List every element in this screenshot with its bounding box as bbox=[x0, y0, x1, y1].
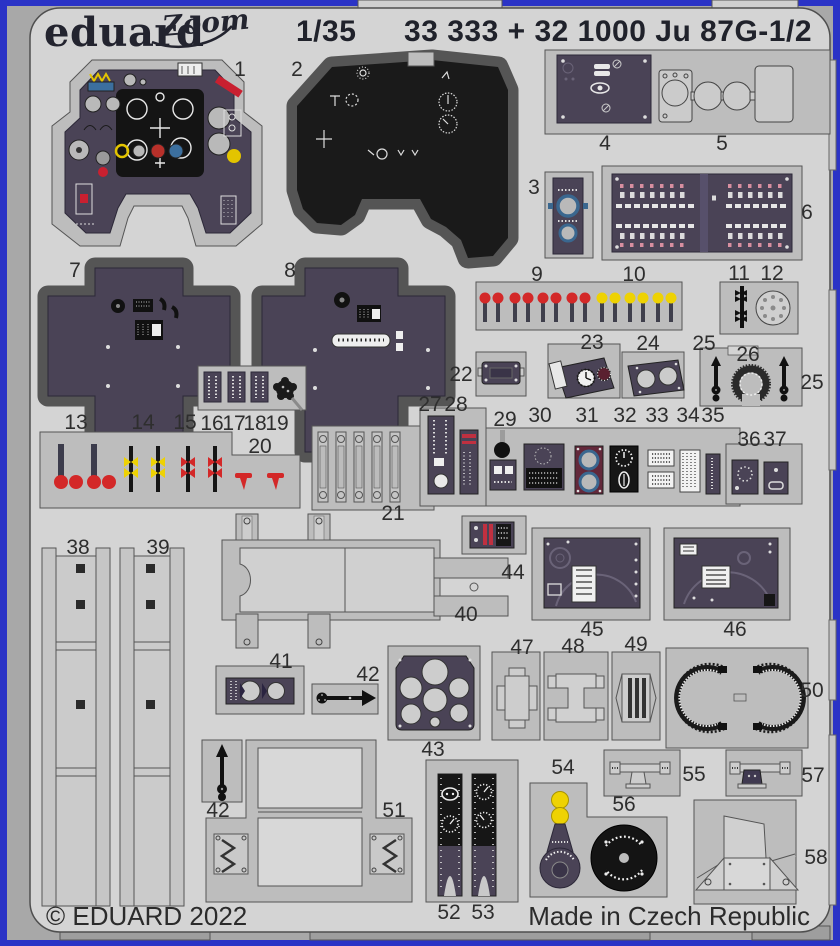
part-number-21: 21 bbox=[381, 502, 404, 525]
part-30 bbox=[524, 444, 564, 490]
part-number-25: 25 bbox=[692, 332, 715, 355]
part-56-disc bbox=[591, 825, 657, 891]
part-44-printed-plate bbox=[462, 516, 526, 554]
part-number-24: 24 bbox=[636, 332, 660, 355]
part-number-47: 47 bbox=[510, 636, 533, 659]
part-number-32: 32 bbox=[613, 404, 636, 427]
part-4-plate bbox=[557, 55, 651, 123]
part-number-2: 2 bbox=[291, 58, 303, 81]
part-number-54: 54 bbox=[551, 756, 575, 779]
part-number-25: 25 bbox=[800, 371, 823, 394]
part-45-console-panel bbox=[532, 528, 650, 620]
part-number-28: 28 bbox=[444, 393, 467, 416]
part-50-serrated-rings bbox=[666, 648, 808, 748]
part-number-29: 29 bbox=[493, 408, 516, 431]
part-number-55: 55 bbox=[682, 763, 705, 786]
part-48-ibeam bbox=[544, 652, 608, 740]
part-number-53: 53 bbox=[471, 901, 494, 924]
part-number-38: 38 bbox=[66, 536, 89, 559]
part-55-bracket bbox=[604, 750, 680, 796]
part-43-gauge-panel bbox=[388, 646, 480, 740]
part-number-44: 44 bbox=[501, 561, 525, 584]
part-11-12 bbox=[720, 282, 798, 334]
part-number-10: 10 bbox=[622, 263, 645, 286]
part-number-57: 57 bbox=[801, 764, 824, 787]
part-number-40: 40 bbox=[454, 603, 477, 626]
part-15-19-plates bbox=[198, 366, 306, 410]
part-number-9: 9 bbox=[531, 263, 543, 286]
part-22-bracket bbox=[476, 352, 526, 396]
part-number-50: 50 bbox=[800, 679, 823, 702]
part-number-12: 12 bbox=[760, 262, 783, 285]
part-34 bbox=[680, 450, 700, 492]
edge-rail bbox=[829, 620, 836, 700]
part-57-bracket bbox=[726, 750, 802, 796]
part-52-53-straps bbox=[426, 760, 518, 902]
part-number-15: 15 bbox=[173, 411, 196, 434]
scale-text: 1/35 bbox=[296, 15, 356, 48]
part-39-frame bbox=[120, 548, 184, 906]
part-35 bbox=[706, 454, 720, 494]
part-31 bbox=[575, 446, 603, 494]
pe-instruction-sheet: eduard Zoom 1/35 33 333 + 32 1000 Ju 87G… bbox=[0, 0, 840, 946]
part-4-5-rail bbox=[545, 50, 830, 134]
part-38-frame bbox=[42, 548, 110, 906]
part-number-41: 41 bbox=[269, 650, 292, 673]
part-47-box bbox=[492, 652, 540, 740]
part-number-42: 42 bbox=[356, 663, 379, 686]
part-36 bbox=[732, 460, 758, 494]
page-title: 33 333 + 32 1000 Ju 87G-1/2 bbox=[404, 15, 812, 48]
part-number-27: 27 bbox=[418, 393, 441, 416]
part-number-17: 17 bbox=[222, 412, 245, 435]
part-number-1: 1 bbox=[234, 58, 246, 81]
part-number-16: 16 bbox=[200, 412, 223, 435]
part-6-switch-panel bbox=[602, 166, 802, 260]
part-46-console-panel bbox=[664, 528, 790, 620]
made-in-text: Made in Czech Republic bbox=[528, 901, 810, 931]
part-number-22: 22 bbox=[449, 363, 472, 386]
edge-rail bbox=[829, 735, 836, 905]
part-number-33: 33 bbox=[645, 404, 668, 427]
part-number-42: 42 bbox=[206, 799, 229, 822]
part-42-lever-vertical bbox=[202, 740, 242, 802]
part-number-23: 23 bbox=[580, 331, 603, 354]
part-number-31: 31 bbox=[575, 404, 598, 427]
part-52 bbox=[438, 774, 462, 896]
edge-rail bbox=[829, 290, 836, 470]
part-number-52: 52 bbox=[437, 901, 460, 924]
part-number-8: 8 bbox=[284, 259, 296, 282]
part-number-14: 14 bbox=[131, 411, 155, 434]
part-number-39: 39 bbox=[146, 536, 169, 559]
part-number-46: 46 bbox=[723, 618, 746, 641]
part-27-28-panels bbox=[420, 408, 486, 506]
part-number-4: 4 bbox=[599, 132, 611, 155]
part-42-lever-horizontal bbox=[312, 684, 378, 714]
part-32 bbox=[610, 446, 638, 492]
part-number-13: 13 bbox=[64, 411, 87, 434]
part-number-48: 48 bbox=[561, 635, 584, 658]
part-21-straps bbox=[312, 426, 434, 510]
part-24-twin-gauge bbox=[622, 352, 684, 398]
part-number-34: 34 bbox=[676, 404, 700, 427]
part-number-37: 37 bbox=[763, 428, 786, 451]
part-number-58: 58 bbox=[804, 846, 827, 869]
part-number-51: 51 bbox=[382, 799, 405, 822]
part-number-6: 6 bbox=[801, 201, 813, 224]
part-number-5: 5 bbox=[716, 132, 728, 155]
part-number-36: 36 bbox=[737, 428, 760, 451]
part-number-35: 35 bbox=[701, 404, 724, 427]
part-49-slats bbox=[612, 652, 660, 740]
part-3-gauge-strip bbox=[545, 172, 593, 258]
copyright-text: © EDUARD 2022 bbox=[46, 901, 247, 931]
part-number-18: 18 bbox=[243, 412, 266, 435]
part-number-26: 26 bbox=[736, 343, 759, 366]
part-number-19: 19 bbox=[265, 412, 288, 435]
part-number-43: 43 bbox=[421, 738, 444, 761]
part-number-49: 49 bbox=[624, 633, 647, 656]
part-number-56: 56 bbox=[612, 793, 635, 816]
part-number-20: 20 bbox=[248, 435, 271, 458]
part-number-7: 7 bbox=[69, 259, 81, 282]
part-58-mount bbox=[694, 800, 798, 904]
part-41-twin-dial-strip bbox=[216, 666, 304, 714]
part-9-10-knob-row bbox=[476, 282, 682, 330]
part-number-30: 30 bbox=[528, 404, 551, 427]
fret-graphic: eduard Zoom 1/35 33 333 + 32 1000 Ju 87G… bbox=[0, 0, 840, 946]
part-37 bbox=[764, 462, 788, 494]
part-number-11: 11 bbox=[728, 262, 750, 285]
part-number-3: 3 bbox=[528, 176, 540, 199]
part-53 bbox=[472, 774, 496, 896]
